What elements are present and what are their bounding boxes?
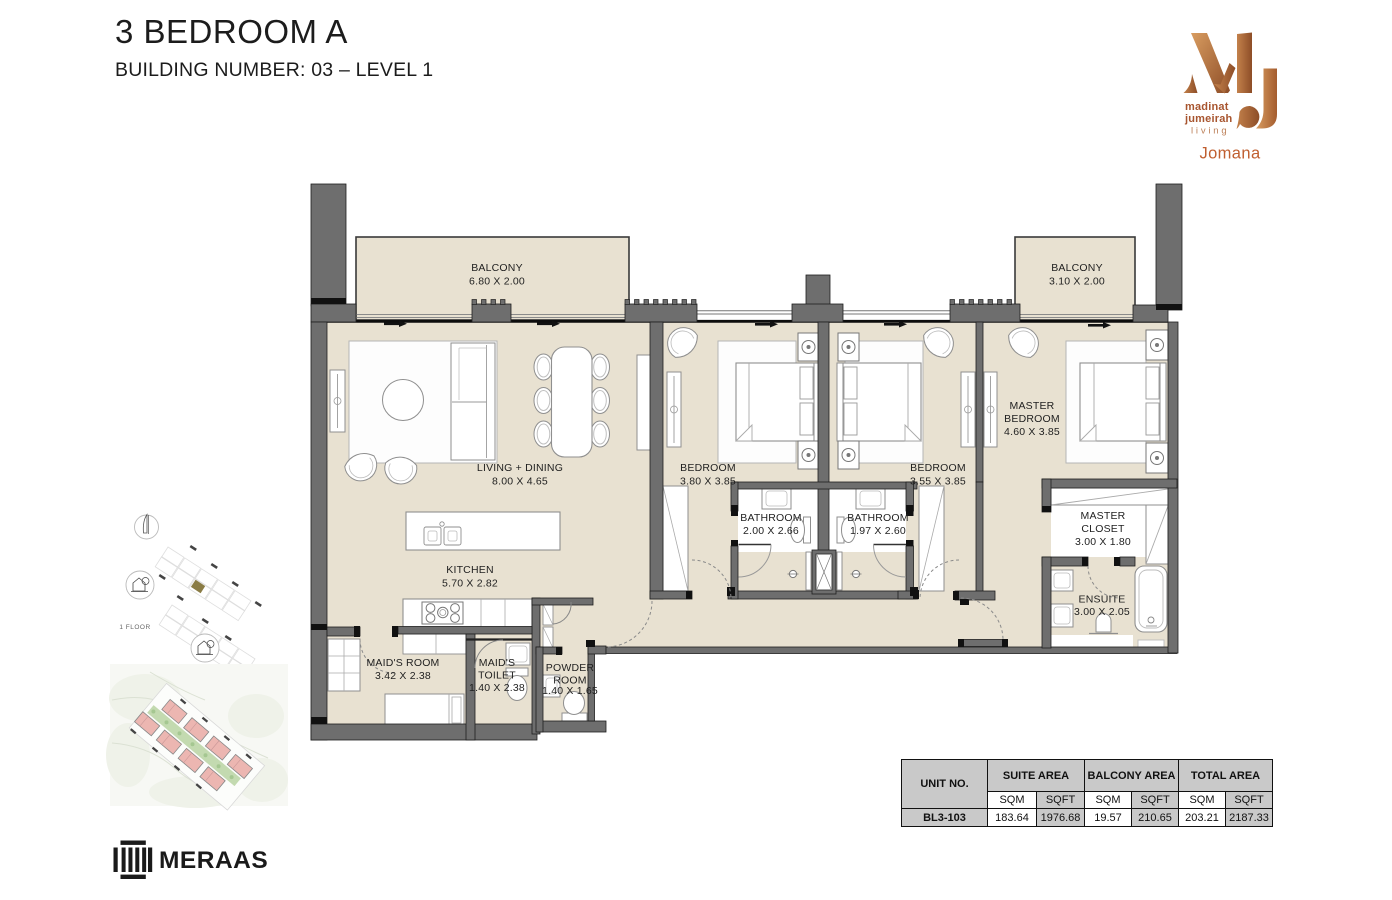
svg-text:BALCONY: BALCONY <box>471 262 523 274</box>
svg-text:LIVING + DINING: LIVING + DINING <box>477 462 563 474</box>
svg-text:BATHROOM: BATHROOM <box>740 512 802 524</box>
svg-text:3.10 X 2.00: 3.10 X 2.00 <box>1049 276 1105 288</box>
svg-text:Jomana: Jomana <box>1199 145 1261 163</box>
svg-text:1.40 X 2.38: 1.40 X 2.38 <box>469 682 525 694</box>
svg-text:BALCONY: BALCONY <box>1051 262 1103 274</box>
svg-text:BEDROOM: BEDROOM <box>680 462 736 474</box>
svg-text:MAID'S ROOM: MAID'S ROOM <box>366 657 439 669</box>
svg-text:living: living <box>1191 126 1229 137</box>
svg-text:3.80 X 3.85: 3.80 X 3.85 <box>680 476 736 488</box>
svg-text:3.00 X 2.05: 3.00 X 2.05 <box>1074 606 1130 618</box>
svg-text:CLOSET: CLOSET <box>1081 523 1125 535</box>
svg-text:3.55 X 3.85: 3.55 X 3.85 <box>910 476 966 488</box>
svg-text:jumeirah: jumeirah <box>1184 113 1233 125</box>
svg-text:BEDROOM: BEDROOM <box>910 462 966 474</box>
svg-text:2.00 X 2.66: 2.00 X 2.66 <box>743 525 799 537</box>
svg-text:POWDER: POWDER <box>546 662 595 674</box>
svg-text:4.60 X 3.85: 4.60 X 3.85 <box>1004 426 1060 438</box>
svg-text:3.00 X 1.80: 3.00 X 1.80 <box>1075 536 1131 548</box>
svg-text:1 FLOOR: 1 FLOOR <box>119 624 150 631</box>
svg-text:madinat: madinat <box>1185 101 1229 113</box>
svg-text:3.42 X 2.38: 3.42 X 2.38 <box>375 670 431 682</box>
svg-text:ENSUITE: ENSUITE <box>1079 594 1126 606</box>
svg-text:MASTER: MASTER <box>1010 400 1055 412</box>
svg-text:1.97 X 2.60: 1.97 X 2.60 <box>850 525 906 537</box>
svg-text:MERAAS: MERAAS <box>159 847 268 874</box>
svg-text:6.80 X 2.00: 6.80 X 2.00 <box>469 276 525 288</box>
svg-text:KITCHEN: KITCHEN <box>446 564 494 576</box>
svg-text:1.40 X 1.65: 1.40 X 1.65 <box>542 685 598 697</box>
svg-text:BEDROOM: BEDROOM <box>1004 413 1060 425</box>
svg-text:TOILET: TOILET <box>478 670 516 682</box>
svg-text:5.70 X 2.82: 5.70 X 2.82 <box>442 578 498 590</box>
svg-text:MAID'S: MAID'S <box>479 657 515 669</box>
svg-text:MASTER: MASTER <box>1081 510 1126 522</box>
svg-text:8.00 X 4.65: 8.00 X 4.65 <box>492 476 548 488</box>
svg-text:BATHROOM: BATHROOM <box>847 512 909 524</box>
